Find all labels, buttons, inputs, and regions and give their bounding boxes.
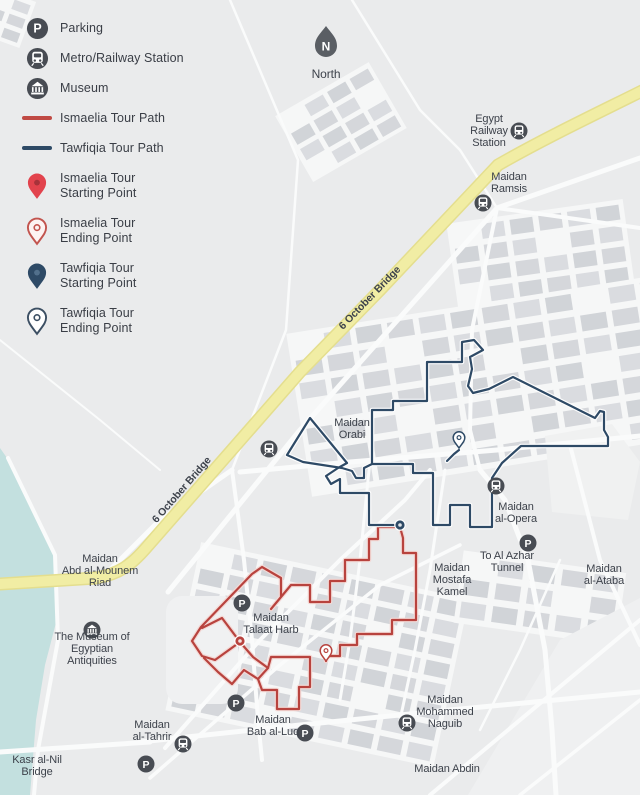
legend-item-tawfiqia-end: Tawfiqia Tour Ending Point <box>19 298 289 343</box>
svg-text:P: P <box>232 698 239 710</box>
legend-label: Parking <box>60 21 103 36</box>
parking-icon: P <box>520 535 537 552</box>
map-label: Maidanal-Ataba <box>584 563 625 587</box>
legend-label: Museum <box>60 81 109 96</box>
svg-text:P: P <box>142 759 149 771</box>
legend-label: Tawfiqia Tour Starting Point <box>60 261 136 291</box>
map-label: Maidanal-Opera <box>495 501 538 525</box>
svg-text:P: P <box>301 728 308 740</box>
map-label: Maidan Abdin <box>414 763 479 775</box>
svg-text:P: P <box>524 538 531 550</box>
metro-icon <box>488 478 505 495</box>
north-icon: N <box>315 26 337 57</box>
map-label: Maidanal-Tahrir <box>133 719 172 743</box>
legend-item-tawfiqia-start: Tawfiqia Tour Starting Point <box>19 253 289 298</box>
tawfiqia-end-pin-icon <box>19 305 55 336</box>
map-canvas[interactable]: NPPPPPNorthEgyptRailwayStationMaidanRams… <box>0 0 640 795</box>
map-label: North <box>312 67 341 81</box>
legend-item-ismaelia-end: Ismaelia Tour Ending Point <box>19 208 289 253</box>
legend-item-ismaelia-start: Ismaelia Tour Starting Point <box>19 163 289 208</box>
city-blocks-district <box>275 62 407 182</box>
museum-icon <box>19 77 55 100</box>
metro-icon <box>19 47 55 70</box>
legend-label: Tawfiqia Tour Ending Point <box>60 306 134 336</box>
tawfiqia-start-pin <box>395 520 405 530</box>
legend-item-ismaelia-path: Ismaelia Tour Path <box>19 103 289 133</box>
legend-label: Ismaelia Tour Ending Point <box>60 216 135 246</box>
ismaelia-start-pin-icon <box>19 170 55 201</box>
svg-text:P: P <box>238 598 245 610</box>
parking-icon: P <box>19 17 55 40</box>
legend-label: Tawfiqia Tour Path <box>60 141 164 156</box>
map-legend: P Parking Metro/Railway Station Museum I… <box>19 13 289 343</box>
legend-label: Metro/Railway Station <box>60 51 184 66</box>
legend-item-museum: Museum <box>19 73 289 103</box>
legend-item-metro: Metro/Railway Station <box>19 43 289 73</box>
ismaelia-end-pin-icon <box>19 215 55 246</box>
tawfiqia-start-pin-icon <box>19 260 55 291</box>
map-label: MaidanMostafaKamel <box>433 562 472 598</box>
tawfiqia-path-swatch <box>19 146 55 151</box>
legend-label: Ismaelia Tour Path <box>60 111 165 126</box>
legend-item-parking: P Parking <box>19 13 289 43</box>
map-label: EgyptRailwayStation <box>470 113 508 149</box>
map-label: The Museum ofEgyptianAntiquities <box>54 631 130 667</box>
parking-icon: P <box>234 595 251 612</box>
parking-icon: P <box>138 756 155 773</box>
metro-icon <box>511 123 528 140</box>
svg-text:P: P <box>33 21 41 35</box>
legend-label: Ismaelia Tour Starting Point <box>60 171 136 201</box>
metro-icon <box>261 441 278 458</box>
ismaelia-path-swatch <box>19 116 55 121</box>
metro-icon <box>175 736 192 753</box>
ismaelia-start-pin <box>235 636 245 646</box>
map-label: MaidanOrabi <box>334 417 369 441</box>
map-label: MaidanRamsis <box>491 171 528 195</box>
metro-icon <box>399 715 416 732</box>
metro-icon <box>475 195 492 212</box>
parking-icon: P <box>228 695 245 712</box>
svg-text:N: N <box>322 40 331 54</box>
legend-item-tawfiqia-path: Tawfiqia Tour Path <box>19 133 289 163</box>
